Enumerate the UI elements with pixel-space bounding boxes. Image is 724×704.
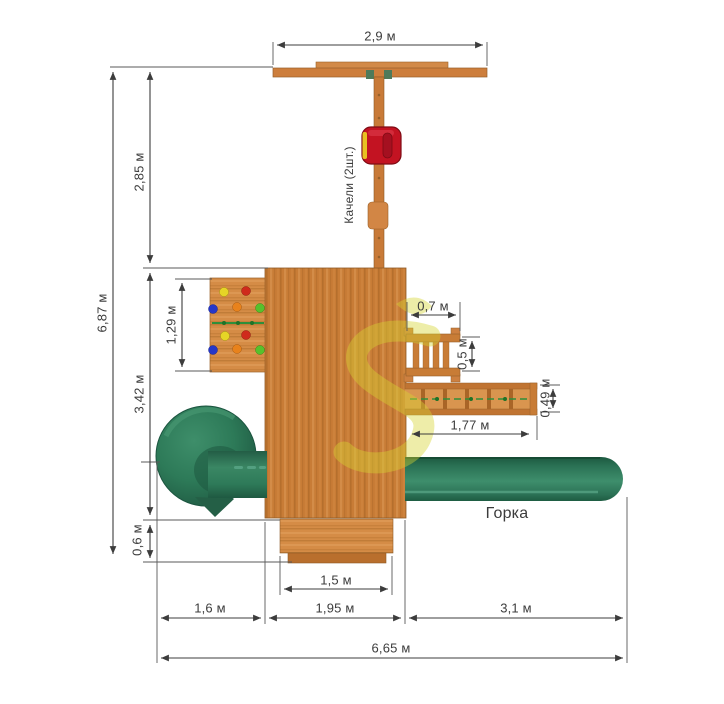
slide-annotation: Горка (486, 505, 529, 523)
dim-ladder-width-label: 0,7 м (417, 299, 449, 314)
dim-slide-bay-width-label: 3,1 м (500, 601, 532, 616)
dim-ladder-depth-label: 0,5 м (455, 338, 470, 370)
dim-bridge-length-label: 1,77 м (450, 418, 489, 433)
steps (280, 519, 393, 563)
dim-climbing-wall-width-label: 1,29 м (164, 305, 179, 344)
dim-steps-depth-label: 0,6 м (130, 524, 145, 556)
dim-overall-depth-label: 6,87 м (95, 293, 110, 332)
dim-beam-width-label: 2,9 м (364, 29, 396, 44)
dim-left-bay-width-label: 1,6 м (194, 601, 226, 616)
dim-overall-width-label: 6,65 м (371, 641, 410, 656)
tube-slide (156, 406, 267, 517)
dim-bridge-depth-label: 0,49 м (538, 378, 553, 417)
swing-beam (273, 62, 487, 79)
dim-swing-bay-depth-label: 2,85 м (132, 152, 147, 191)
swing-seat (362, 127, 401, 164)
playground-diagram (0, 0, 724, 704)
straight-slide (405, 457, 623, 501)
swing-post (368, 77, 388, 269)
dim-steps-width-label: 1,5 м (320, 573, 352, 588)
playground-dimension-drawing: 2,9 м 6,87 м 2,85 м 3,42 м 0,6 м 1,29 м … (0, 0, 724, 704)
swings-annotation: Качели (2шт.) (342, 146, 356, 223)
dim-platform-width-label: 1,95 м (315, 601, 354, 616)
dim-platform-bay-depth-label: 3,42 м (132, 374, 147, 413)
climbing-wall (209, 278, 266, 372)
